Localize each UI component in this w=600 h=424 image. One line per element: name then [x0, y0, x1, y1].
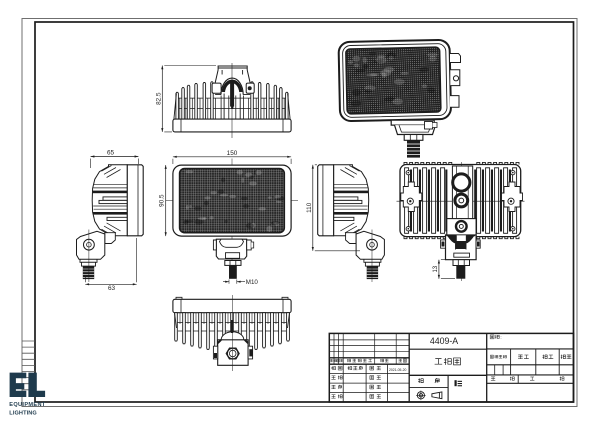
svg-text:110: 110 — [306, 202, 313, 213]
svg-text:63: 63 — [108, 285, 116, 292]
svg-text:90.5: 90.5 — [159, 194, 166, 207]
svg-text:2021-05-20: 2021-05-20 — [389, 368, 406, 372]
svg-text:65: 65 — [107, 150, 115, 157]
svg-text:150: 150 — [227, 150, 238, 157]
svg-text:82.5: 82.5 — [156, 92, 163, 105]
svg-text:M10: M10 — [246, 279, 259, 286]
svg-text:LIGHTING: LIGHTING — [9, 410, 37, 416]
svg-text::: : — [500, 335, 501, 340]
svg-text:4409-A: 4409-A — [430, 336, 458, 346]
svg-text:13: 13 — [433, 265, 439, 272]
svg-text:EQUIPMENT: EQUIPMENT — [9, 402, 46, 408]
